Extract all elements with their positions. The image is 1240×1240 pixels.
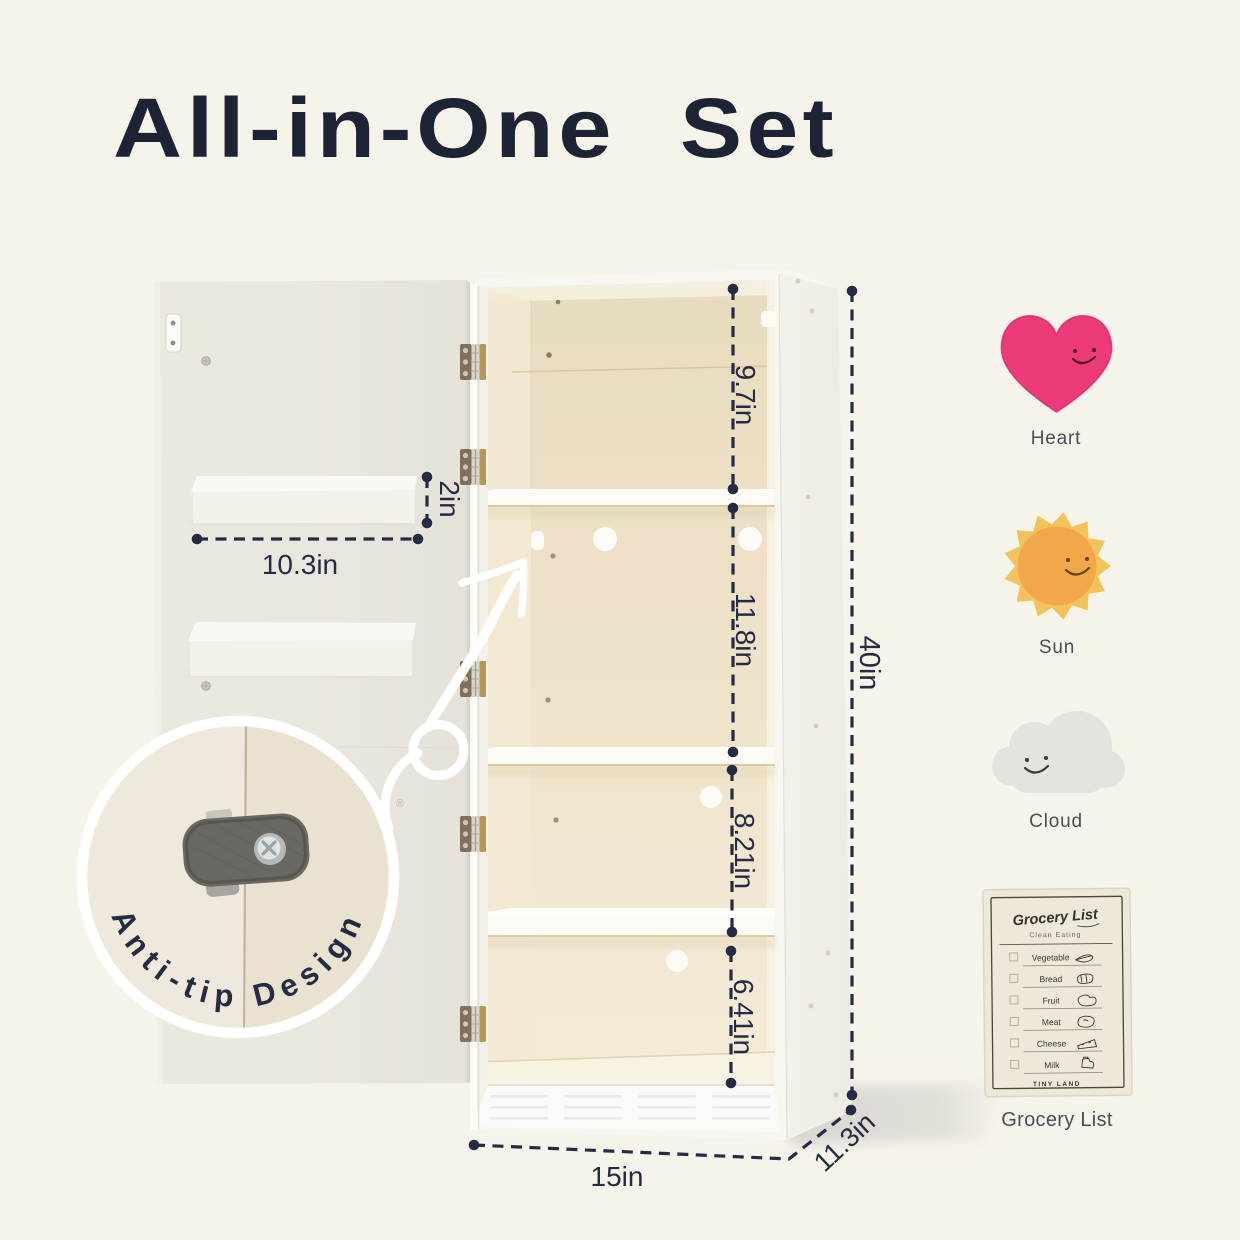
svg-text:15in: 15in [591, 1161, 644, 1192]
svg-text:11.8in: 11.8in [730, 593, 761, 667]
svg-text:All-in-One: All-in-One [113, 81, 616, 175]
svg-text:Set: Set [680, 81, 838, 175]
svg-text:Milk: Milk [1044, 1060, 1060, 1070]
svg-text:Grocery List: Grocery List [1001, 1109, 1113, 1131]
svg-text:Cloud: Cloud [1029, 811, 1083, 832]
svg-text:Cheese: Cheese [1037, 1038, 1067, 1048]
svg-text:6.41in: 6.41in [728, 979, 759, 1055]
svg-text:9.7in: 9.7in [730, 365, 761, 426]
svg-text:Clean Eating: Clean Eating [1029, 932, 1081, 940]
svg-text:8.21in: 8.21in [729, 813, 760, 889]
svg-text:Bread: Bread [1039, 974, 1062, 984]
svg-text:Heart: Heart [1031, 428, 1081, 449]
svg-text:10.3in: 10.3in [262, 549, 338, 580]
svg-text:Sun: Sun [1039, 637, 1075, 658]
svg-text:Vegetable: Vegetable [1032, 952, 1070, 962]
svg-text:40in: 40in [853, 636, 885, 691]
svg-text:Fruit: Fruit [1043, 995, 1061, 1005]
svg-text:®: ® [396, 798, 404, 810]
svg-text:Meat: Meat [1042, 1017, 1062, 1027]
svg-text:2in: 2in [434, 480, 465, 517]
svg-text:TINY LAND: TINY LAND [1033, 1081, 1081, 1089]
